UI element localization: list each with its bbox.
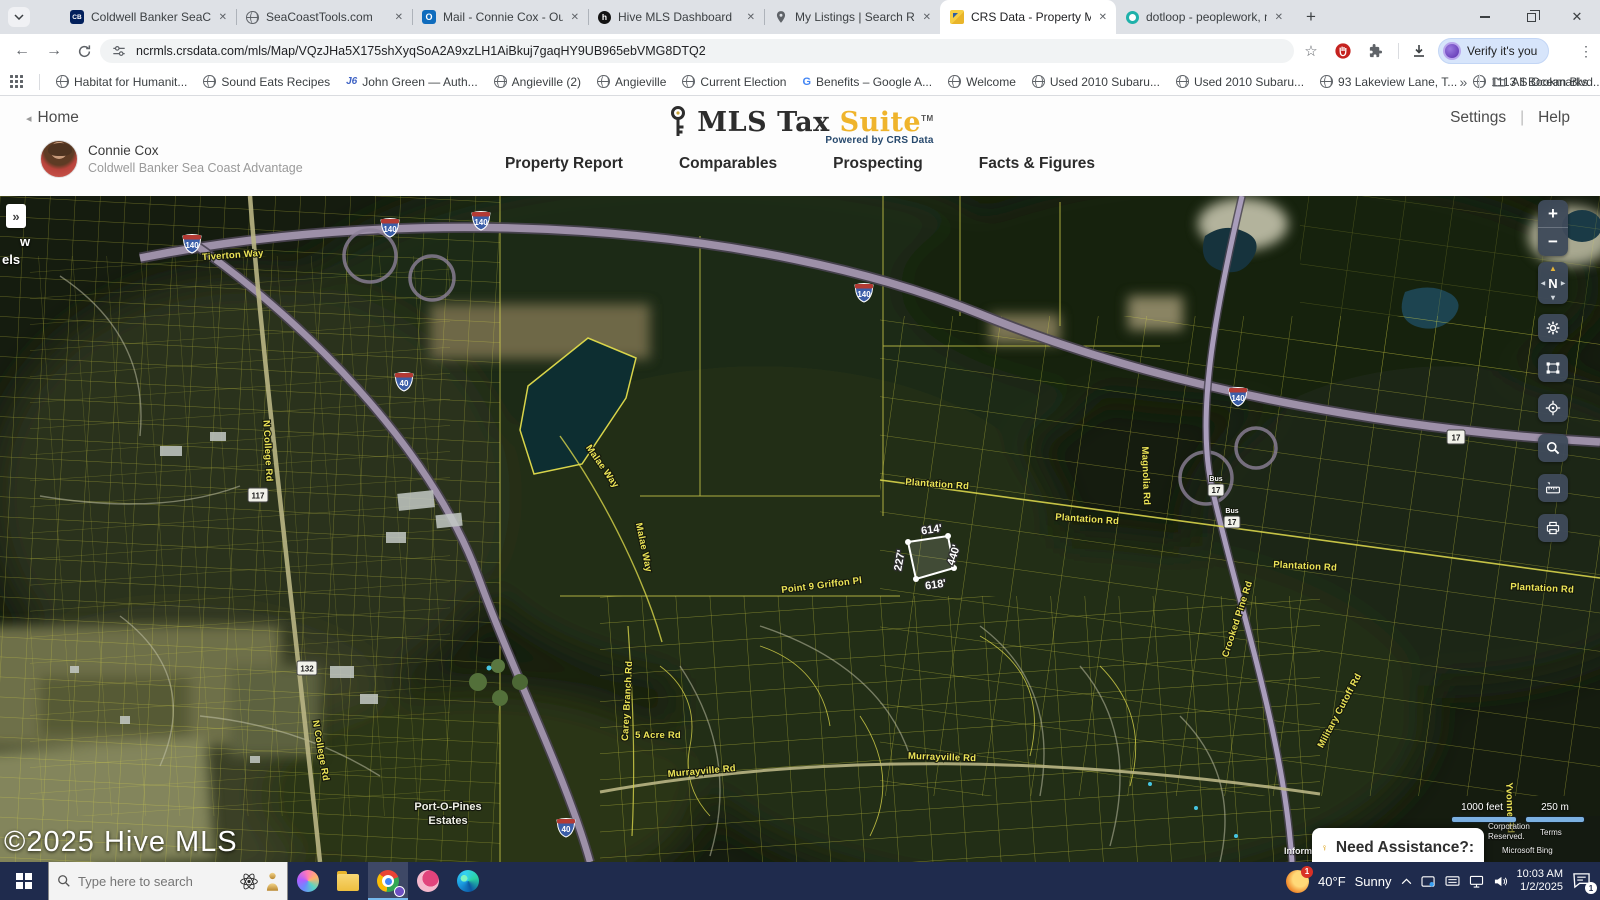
minimize-icon xyxy=(1480,16,1490,17)
search-highlight-figure-icon xyxy=(266,872,279,891)
back-button[interactable]: ← xyxy=(10,39,34,63)
folder-icon xyxy=(1492,75,1506,89)
tab-label: Hive MLS Dashboard xyxy=(618,10,739,24)
bookmark-item[interactable]: Used 2010 Subaru... xyxy=(1176,75,1304,89)
tab-crs-data-active[interactable]: CRS Data - Property Map for ✕ xyxy=(940,0,1116,34)
scale-bar-meters xyxy=(1526,817,1584,822)
compass-control[interactable]: ▲ ◂ ▸ ▾ N xyxy=(1538,262,1568,304)
edge-icon xyxy=(457,870,479,892)
downloads-button[interactable] xyxy=(1408,40,1430,62)
svg-text:17: 17 xyxy=(1228,518,1237,527)
svg-text:Bus: Bus xyxy=(1225,508,1238,515)
windows-taskbar: 1 40°F Sunny 10:03 AM 1/2/2025 1 xyxy=(0,862,1600,900)
toolbar-divider xyxy=(1398,43,1399,59)
taskbar-copilot-icon[interactable] xyxy=(288,862,328,900)
extensions-puzzle-icon[interactable] xyxy=(1364,40,1386,62)
tab-close-icon[interactable]: ✕ xyxy=(1098,12,1108,23)
tray-volume-icon[interactable] xyxy=(1493,875,1508,888)
bookmarks-divider xyxy=(39,74,40,90)
printer-icon xyxy=(1545,520,1561,536)
zoom-out-button[interactable]: − xyxy=(1538,228,1568,256)
taskbar-pink-app-icon[interactable] xyxy=(408,862,448,900)
map-copyright: ©2025 Hive MLS xyxy=(4,826,238,859)
taskbar-clock[interactable]: 10:03 AM 1/2/2025 xyxy=(1517,868,1563,894)
svg-text:117: 117 xyxy=(252,492,265,501)
clock-time: 10:03 AM xyxy=(1517,868,1563,881)
tab-seacoasttools[interactable]: SeaCoastTools.com ✕ xyxy=(236,0,412,34)
compass-south-caret: ▾ xyxy=(1551,293,1555,302)
crs-map-favicon xyxy=(950,10,964,24)
cutoff-label-fragment: els xyxy=(2,252,20,267)
ruler-icon xyxy=(1545,480,1561,496)
tray-expand-chevron-icon[interactable] xyxy=(1401,878,1412,885)
road-label: 5 Acre Rd xyxy=(635,730,681,741)
scale-meters-label: 250 m xyxy=(1526,802,1584,813)
tab-label: Mail - Connie Cox - Outlook xyxy=(443,10,563,24)
my-location-button[interactable] xyxy=(1538,394,1568,422)
john-green-icon: J6 xyxy=(346,76,357,87)
us-route-shield: 132 xyxy=(297,661,317,675)
sidebar-expand-button[interactable]: » xyxy=(6,204,26,228)
taskbar-chrome-icon[interactable] xyxy=(368,862,408,900)
tab-label: My Listings | Search Results | fle xyxy=(795,10,915,24)
nav-property-report[interactable]: Property Report xyxy=(505,155,623,173)
bus-route-shield: Bus17 xyxy=(1208,476,1224,496)
need-assistance-popup[interactable]: Need Assistance?: xyxy=(1312,828,1484,862)
google-g-icon: G xyxy=(802,76,811,88)
tab-dotloop[interactable]: dotloop - peoplework, not pap ✕ xyxy=(1116,0,1292,34)
map-search-button[interactable] xyxy=(1538,434,1568,462)
browser-tab-strip: CB Coldwell Banker SeaCoast Adva ✕ SeaCo… xyxy=(0,0,1600,34)
bookmark-item[interactable]: Current Election xyxy=(682,75,786,89)
globe-icon xyxy=(56,75,69,88)
coldwell-banker-favicon: CB xyxy=(70,10,84,24)
chevron-down-icon xyxy=(14,14,24,20)
bus-route-shield: Bus17 xyxy=(1224,508,1240,528)
verify-profile-button[interactable]: Verify it's you xyxy=(1438,38,1549,64)
tray-tablet-icon[interactable] xyxy=(1421,875,1436,888)
tray-keyboard-icon[interactable] xyxy=(1445,875,1460,887)
compass-n-label: N xyxy=(1548,276,1557,291)
svg-text:40: 40 xyxy=(562,825,571,834)
start-button[interactable] xyxy=(0,862,48,900)
pink-app-icon xyxy=(417,870,439,892)
print-button[interactable] xyxy=(1538,514,1568,542)
tab-close-icon[interactable]: ✕ xyxy=(1274,12,1284,23)
map-pin-favicon xyxy=(774,10,788,24)
apps-grid-icon[interactable] xyxy=(10,75,23,88)
adblock-extension-icon[interactable] xyxy=(1332,40,1354,62)
forward-button[interactable]: → xyxy=(42,39,66,63)
gear-icon xyxy=(1545,320,1561,336)
bookmarks-overflow-button[interactable]: » xyxy=(1460,74,1468,90)
gold-key-icon xyxy=(1322,836,1327,860)
globe-icon xyxy=(682,75,695,88)
area-select-button[interactable] xyxy=(1538,354,1568,382)
logo-text-dark: MLS Tax xyxy=(697,107,839,138)
taskbar-file-explorer-icon[interactable] xyxy=(328,862,368,900)
chrome-menu-button[interactable]: ⋮ xyxy=(1576,39,1596,63)
bookmark-item[interactable]: Used 2010 Subaru... xyxy=(1032,75,1160,89)
nav-facts-figures[interactable]: Facts & Figures xyxy=(979,155,1095,173)
svg-text:140: 140 xyxy=(383,225,397,234)
subdivision-label: Estates xyxy=(428,815,467,827)
copilot-icon xyxy=(297,870,319,892)
mls-tax-suite-header: ◂ Home Connie Cox Coldwell Banker Sea Co… xyxy=(0,96,1600,196)
window-close-button[interactable]: ✕ xyxy=(1554,0,1600,34)
outlook-favicon: O xyxy=(422,10,436,24)
bookmarks-divider xyxy=(1479,74,1480,90)
svg-text:Bus: Bus xyxy=(1209,476,1222,483)
tab-close-icon[interactable]: ✕ xyxy=(922,12,932,23)
bookmark-star-icon[interactable]: ☆ xyxy=(1300,40,1322,62)
bookmark-item[interactable]: GBenefits – Google A... xyxy=(802,75,932,89)
browser-toolbar: ← → ncrmls.crsdata.com/mls/Map/VQzJHa5X1… xyxy=(0,34,1600,68)
attribution-terms-link[interactable]: Terms xyxy=(1540,828,1562,837)
globe-icon xyxy=(494,75,507,88)
attribution-text: Corporation xyxy=(1488,822,1530,831)
reload-button[interactable] xyxy=(72,39,96,63)
svg-text:140: 140 xyxy=(185,241,199,250)
nav-comparables[interactable]: Comparables xyxy=(679,155,777,173)
tab-separator xyxy=(412,9,413,25)
compass-west-caret: ◂ xyxy=(1541,279,1545,288)
weather-temp[interactable]: 40°F xyxy=(1318,874,1346,889)
tab-close-icon[interactable]: ✕ xyxy=(394,12,404,23)
desktop-screen: CB Coldwell Banker SeaCoast Adva ✕ SeaCo… xyxy=(0,0,1600,900)
all-bookmarks-button[interactable]: All Bookmarks xyxy=(1492,75,1588,89)
svg-text:140: 140 xyxy=(857,290,871,299)
attribution-partial-text: Inform xyxy=(1284,846,1312,856)
bookmark-item[interactable]: Angieville (2) xyxy=(494,75,581,89)
restore-icon xyxy=(1527,13,1536,22)
tab-close-icon[interactable]: ✕ xyxy=(218,12,228,23)
crosshair-icon xyxy=(1545,400,1561,416)
header-links-divider: | xyxy=(1520,109,1524,127)
globe-favicon xyxy=(246,11,259,24)
window-restore-button[interactable] xyxy=(1508,0,1554,34)
subdivision-label: Port-O-Pines xyxy=(414,801,481,813)
road-label: Magnolia Rd xyxy=(1139,446,1152,505)
reload-icon xyxy=(77,44,92,59)
logo-text-gold: Suite xyxy=(840,107,922,138)
attribution-text: Reserved. xyxy=(1488,832,1524,841)
tab-label: SeaCoastTools.com xyxy=(266,10,387,24)
notification-badge: 1 xyxy=(1585,882,1597,894)
satellite-parcel-map: 614' 618' 227' 440' 140 140 140 140 140 … xyxy=(0,196,1600,862)
logo-tm: TM xyxy=(921,114,934,123)
nav-prospecting[interactable]: Prospecting xyxy=(833,155,923,173)
url-text[interactable]: ncrmls.crsdata.com/mls/Map/VQzJHa5X175sh… xyxy=(136,44,706,58)
svg-text:17: 17 xyxy=(1452,434,1461,443)
site-settings-icon[interactable] xyxy=(112,44,126,58)
search-icon xyxy=(1545,440,1561,456)
search-icon xyxy=(57,874,71,888)
search-input[interactable] xyxy=(78,874,232,889)
bookmark-item[interactable]: Sound Eats Recipes xyxy=(203,75,330,89)
attribution-text: Microsoft Bing xyxy=(1502,846,1553,855)
folder-icon xyxy=(337,874,359,891)
globe-icon xyxy=(1176,75,1189,88)
windows-logo-icon xyxy=(16,873,32,889)
tab-search-button[interactable] xyxy=(8,7,30,27)
svg-text:140: 140 xyxy=(474,218,488,227)
main-navigation: Property Report Comparables Prospecting … xyxy=(0,155,1600,173)
chrome-extension-badge xyxy=(394,886,405,897)
action-center-button[interactable]: 1 xyxy=(1572,872,1592,890)
compass-north-caret: ▲ xyxy=(1549,264,1557,273)
svg-text:40: 40 xyxy=(400,379,409,388)
us-route-shield: 117 xyxy=(248,488,268,502)
hive-favicon: h xyxy=(598,11,611,24)
puzzle-icon xyxy=(1368,44,1383,59)
tab-my-listings[interactable]: My Listings | Search Results | fle ✕ xyxy=(764,0,940,34)
new-tab-button[interactable]: + xyxy=(1300,6,1322,28)
dotloop-favicon xyxy=(1126,11,1139,24)
help-link[interactable]: Help xyxy=(1538,109,1570,127)
bookmark-item[interactable]: Welcome xyxy=(948,75,1016,89)
download-icon xyxy=(1411,43,1427,59)
scale-feet-label: 1000 feet xyxy=(1446,802,1518,813)
globe-icon xyxy=(1320,75,1333,88)
globe-icon xyxy=(1032,75,1045,88)
us-route-shield: 17 xyxy=(1447,430,1465,444)
tab-close-icon[interactable]: ✕ xyxy=(746,12,756,23)
address-bar[interactable]: ncrmls.crsdata.com/mls/Map/VQzJHa5X175sh… xyxy=(100,39,1294,63)
tab-separator xyxy=(764,9,765,25)
zoom-in-button[interactable]: + xyxy=(1538,200,1568,228)
verify-label: Verify it's you xyxy=(1467,44,1537,58)
settings-link[interactable]: Settings xyxy=(1450,109,1506,127)
mls-tax-suite-logo: MLS Tax SuiteTM Powered by CRS Data xyxy=(0,104,1600,146)
profile-avatar-icon xyxy=(1443,42,1461,60)
weather-condition[interactable]: Sunny xyxy=(1355,874,1392,889)
tab-separator xyxy=(588,9,589,25)
search-highlight-atom-icon xyxy=(239,873,259,890)
tab-label: dotloop - peoplework, not pap xyxy=(1146,10,1267,24)
assistance-label: Need Assistance?: xyxy=(1336,839,1474,857)
tab-hive-mls[interactable]: h Hive MLS Dashboard ✕ xyxy=(588,0,764,34)
measure-button[interactable] xyxy=(1538,474,1568,502)
globe-icon xyxy=(948,75,961,88)
globe-icon xyxy=(597,75,610,88)
svg-text:132: 132 xyxy=(300,665,314,674)
property-map[interactable]: 614' 618' 227' 440' 140 140 140 140 140 … xyxy=(0,196,1600,862)
taskbar-edge-icon[interactable] xyxy=(448,862,488,900)
globe-icon xyxy=(203,75,216,88)
map-settings-button[interactable] xyxy=(1538,314,1568,342)
taskbar-search[interactable] xyxy=(48,862,288,900)
bookmark-item[interactable]: Habitat for Humanit... xyxy=(56,75,187,89)
bookmark-item[interactable]: 93 Lakeview Lane, T... xyxy=(1320,75,1457,89)
clock-date: 1/2/2025 xyxy=(1517,881,1563,894)
tab-close-icon[interactable]: ✕ xyxy=(570,12,580,23)
adblock-icon xyxy=(1335,43,1351,59)
window-minimize-button[interactable] xyxy=(1462,0,1508,34)
svg-text:17: 17 xyxy=(1212,486,1221,495)
svg-text:140: 140 xyxy=(1231,394,1245,403)
bookmarks-bar: Habitat for Humanit... Sound Eats Recipe… xyxy=(0,68,1600,96)
tray-network-icon[interactable] xyxy=(1469,875,1484,888)
tab-outlook-mail[interactable]: O Mail - Connie Cox - Outlook ✕ xyxy=(412,0,588,34)
tab-label: CRS Data - Property Map for xyxy=(971,10,1091,24)
weather-badge: 1 xyxy=(1301,866,1313,878)
tab-separator xyxy=(236,9,237,25)
weather-icon[interactable]: 1 xyxy=(1286,870,1309,893)
select-area-icon xyxy=(1545,360,1561,376)
compass-east-caret: ▸ xyxy=(1561,279,1565,288)
tab-coldwell-banker[interactable]: CB Coldwell Banker SeaCoast Adva ✕ xyxy=(60,0,236,34)
bookmark-item[interactable]: Angieville xyxy=(597,75,666,89)
tab-label: Coldwell Banker SeaCoast Adva xyxy=(91,10,211,24)
bookmark-item[interactable]: J6John Green — Auth... xyxy=(346,75,478,89)
map-controls: + − ▲ ◂ ▸ ▾ N xyxy=(1538,200,1568,542)
cutoff-label-fragment: w xyxy=(20,234,30,249)
key-icon xyxy=(666,104,690,140)
